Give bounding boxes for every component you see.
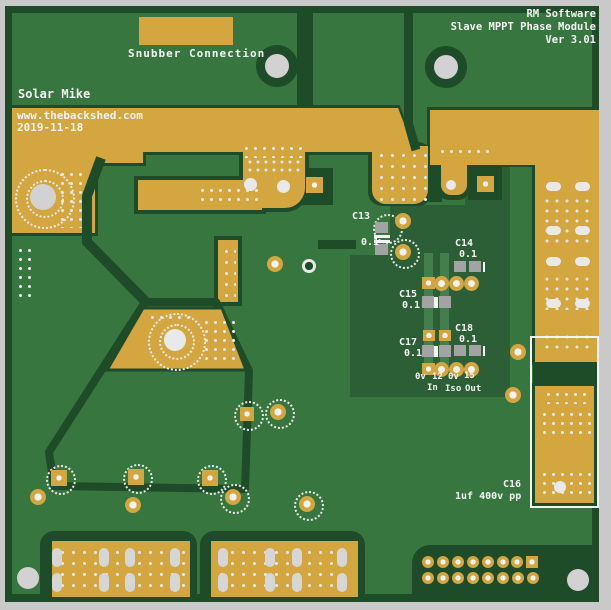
vias-conn-mid <box>216 547 352 593</box>
vias-trapezoid <box>202 318 236 366</box>
pin-label-0v-2: 0v <box>448 372 459 382</box>
ring-pad <box>395 213 411 229</box>
author-label: Solar Mike <box>18 87 90 101</box>
ring-pad <box>510 344 526 360</box>
c18-cap-mark <box>483 346 485 356</box>
title-version: Ver 3.01 <box>296 34 596 47</box>
corner-hole <box>567 569 589 591</box>
drill-hole-large <box>30 184 56 210</box>
pin-label-in: In <box>427 383 438 393</box>
ring-pad <box>225 489 241 505</box>
c13-pad-1 <box>375 222 388 233</box>
c16-ref: C16 <box>503 479 521 490</box>
conn-slot <box>337 548 347 567</box>
vias-lobe-a <box>376 150 430 202</box>
drill-hole <box>277 180 290 193</box>
ring-pad <box>395 244 411 260</box>
conn-slot <box>52 548 62 567</box>
header-pin <box>482 556 494 568</box>
conn-slot <box>125 548 135 567</box>
vias-conn-left <box>57 547 185 593</box>
pin-label-0v-1: 0v <box>415 372 426 382</box>
c16-value: 1uf 400v pp <box>455 491 521 502</box>
c15-ref: C15 <box>399 289 417 300</box>
oval-pad <box>575 226 590 235</box>
header-pin <box>511 556 523 568</box>
c15-pad-2 <box>439 296 451 308</box>
title-company: RM Software <box>296 8 596 21</box>
snubber-label: Snubber Connection <box>128 47 265 60</box>
vias-band-right <box>242 144 308 158</box>
date-label: 2019-11-18 <box>17 121 83 134</box>
header-pin <box>422 556 434 568</box>
conn-slot <box>170 548 180 567</box>
drill-hole <box>244 178 257 191</box>
oval-pad <box>575 257 590 266</box>
c15-cap-mark <box>434 297 438 308</box>
c13-value: 0.1 <box>361 237 379 248</box>
oval-pad <box>546 226 561 235</box>
c15-value: 0.1 <box>402 300 420 311</box>
header-pin <box>467 556 479 568</box>
ring-pad <box>267 256 283 272</box>
mounting-hole <box>425 46 467 88</box>
header-pin <box>527 572 539 584</box>
c14-pad-2 <box>469 261 481 272</box>
header-pin <box>512 572 524 584</box>
oval-pad <box>575 182 590 191</box>
oval-pad <box>546 257 561 266</box>
title-module: Slave MPPT Phase Module <box>296 21 596 34</box>
square-pad <box>240 407 254 421</box>
ring-pad <box>505 387 521 403</box>
pin-label-12: 12 <box>432 372 443 382</box>
header-pin-1 <box>526 556 538 568</box>
pin-label-iso: Iso <box>445 384 461 394</box>
c14-cap-mark <box>483 262 485 272</box>
header-pin <box>497 556 509 568</box>
conn-slot <box>265 548 275 567</box>
vias-blob <box>246 158 300 174</box>
oval-pad <box>575 299 590 308</box>
conn-slot <box>170 573 180 592</box>
vias-col-upper <box>542 196 592 248</box>
pin-label-out: Out <box>465 384 481 394</box>
header-pin <box>422 572 434 584</box>
ring-pad <box>434 276 449 291</box>
ring-pad <box>30 489 46 505</box>
ring-pad <box>270 404 286 420</box>
conn-slot <box>125 573 135 592</box>
square-pad <box>306 177 323 193</box>
pin-label-15: 15 <box>464 371 475 381</box>
conn-slot <box>218 548 228 567</box>
pcb-render: RM Software Slave MPPT Phase Module Ver … <box>0 0 611 610</box>
header-pin <box>482 572 494 584</box>
drill-hole-large <box>164 329 186 351</box>
oval-pad <box>546 182 561 191</box>
c17-value: 0.1 <box>404 348 422 359</box>
square-pad <box>128 469 144 485</box>
c17-ref: C17 <box>399 337 417 348</box>
c17-cap-mark <box>434 346 438 357</box>
square-pad <box>202 470 218 486</box>
c18-pad-2 <box>469 345 481 356</box>
oval-pad <box>546 299 561 308</box>
header-pin <box>452 556 464 568</box>
square-pad <box>477 176 494 192</box>
header-pin <box>467 572 479 584</box>
c14-ref: C14 <box>455 238 473 249</box>
square-pad <box>439 330 451 341</box>
trace-elbow <box>87 158 147 303</box>
header-pin <box>437 556 449 568</box>
header-pin <box>452 572 464 584</box>
ring-pad <box>464 276 479 291</box>
conn-slot <box>218 573 228 592</box>
vias-left-cols <box>16 246 34 298</box>
ring-pad <box>299 496 315 512</box>
c18-value: 0.1 <box>459 334 477 345</box>
vias-vbar <box>222 246 236 298</box>
square-pad <box>51 470 67 486</box>
conn-slot <box>99 548 109 567</box>
title-block: RM Software Slave MPPT Phase Module Ver … <box>296 8 596 47</box>
conn-slot <box>337 573 347 592</box>
c13-ref: C13 <box>352 211 370 222</box>
c14-pad-1 <box>454 261 466 272</box>
conn-slot <box>292 573 302 592</box>
header-pin <box>497 572 509 584</box>
conn-slot <box>292 548 302 567</box>
drill-hole <box>446 180 456 190</box>
drill-hole <box>554 481 566 493</box>
ring-pad <box>449 276 464 291</box>
vias-d-bar <box>438 147 490 157</box>
conn-slot <box>99 573 109 592</box>
c18-ref: C18 <box>455 323 473 334</box>
square-pad <box>423 330 435 341</box>
conn-slot <box>52 573 62 592</box>
c17-pad-1 <box>422 345 434 357</box>
unplated-via <box>302 259 316 273</box>
c18-pad-1 <box>454 345 466 356</box>
corner-hole <box>17 567 39 589</box>
ring-pad <box>125 497 141 513</box>
header-pin <box>437 572 449 584</box>
trace-tail <box>408 122 416 150</box>
c15-pad-1 <box>422 296 434 308</box>
conn-slot <box>265 573 275 592</box>
c17-pad-2 <box>439 345 451 357</box>
c14-value: 0.1 <box>459 249 477 260</box>
